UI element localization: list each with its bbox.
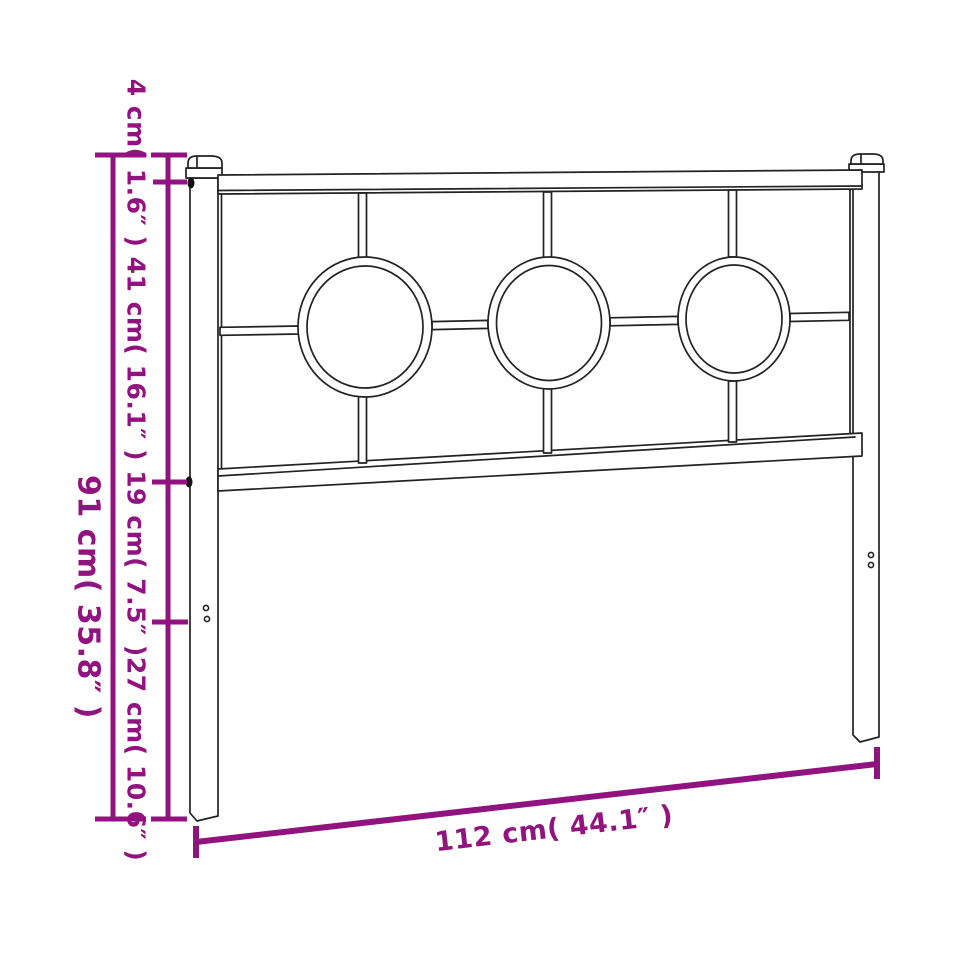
left-post [186,156,222,821]
height-segments-label: 4 cm( 1.6″ ) 41 cm( 16.1″ ) 19 cm( 7.5″ … [122,79,151,862]
ring-2 [488,257,610,389]
ring-1 [298,257,432,397]
left-post-cap-flange [186,168,222,178]
lower-rail [218,433,862,491]
total-height-label: 91 cm( 35.8″ ) [71,475,106,719]
ring-3 [678,257,790,381]
right-post-cap [851,154,883,164]
screw-top [188,178,195,189]
dimension-diagram: 91 cm( 35.8″ ) 4 cm( 1.6″ ) 41 cm( 16.1″… [0,0,955,955]
left-post-cap [188,156,222,168]
top-rail [218,170,862,194]
dimension-line-height-segments [151,153,188,821]
